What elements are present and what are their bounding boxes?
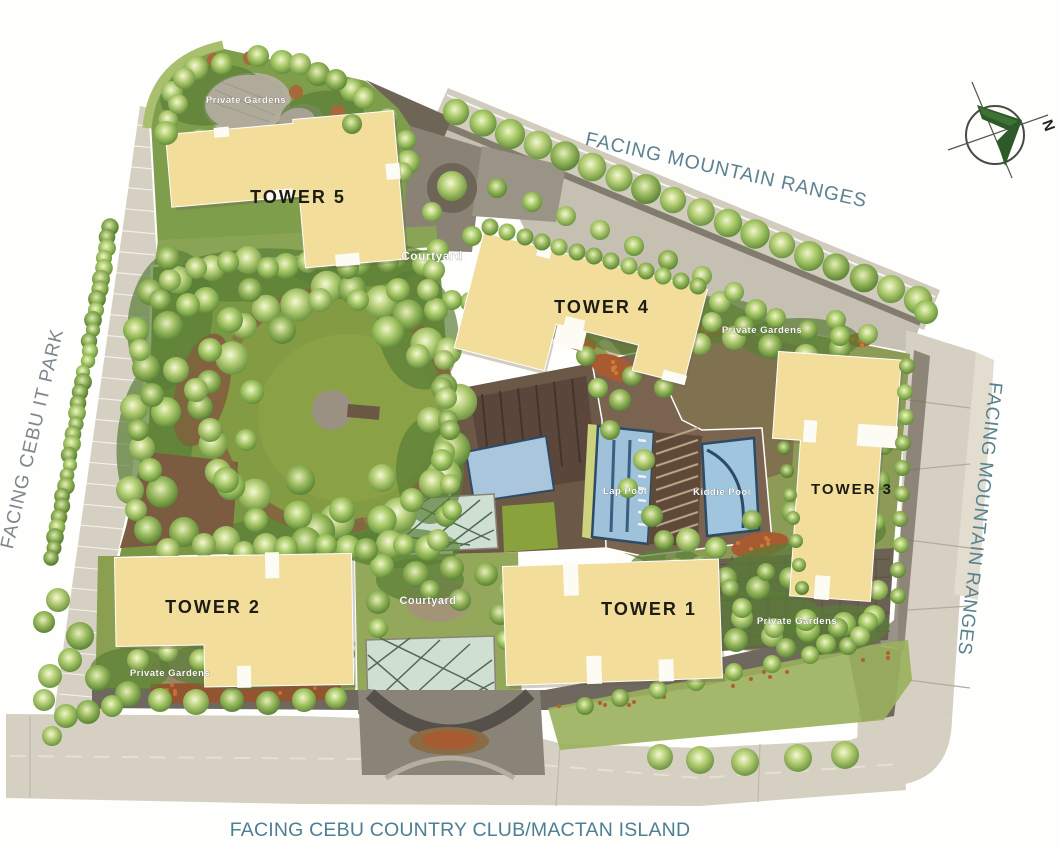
svg-text:Private Gardens: Private Gardens bbox=[722, 325, 802, 336]
svg-text:TOWER 3: TOWER 3 bbox=[811, 481, 893, 498]
svg-text:FACING CEBU COUNTRY CLUB/MACTA: FACING CEBU COUNTRY CLUB/MACTAN ISLAND bbox=[230, 819, 691, 841]
svg-text:TOWER 5: TOWER 5 bbox=[250, 187, 346, 207]
svg-text:Private Gardens: Private Gardens bbox=[206, 95, 286, 106]
svg-text:Courtyard: Courtyard bbox=[401, 249, 463, 263]
svg-text:Kiddie Pool: Kiddie Pool bbox=[693, 487, 751, 498]
svg-text:Lap Pool: Lap Pool bbox=[603, 486, 647, 497]
svg-text:TOWER 2: TOWER 2 bbox=[165, 597, 261, 617]
svg-text:TOWER 4: TOWER 4 bbox=[554, 297, 650, 317]
svg-text:Private Gardens: Private Gardens bbox=[757, 616, 837, 627]
svg-text:Private Gardens: Private Gardens bbox=[130, 668, 210, 679]
svg-text:TOWER 1: TOWER 1 bbox=[601, 599, 697, 619]
svg-text:Courtyard: Courtyard bbox=[399, 595, 456, 607]
